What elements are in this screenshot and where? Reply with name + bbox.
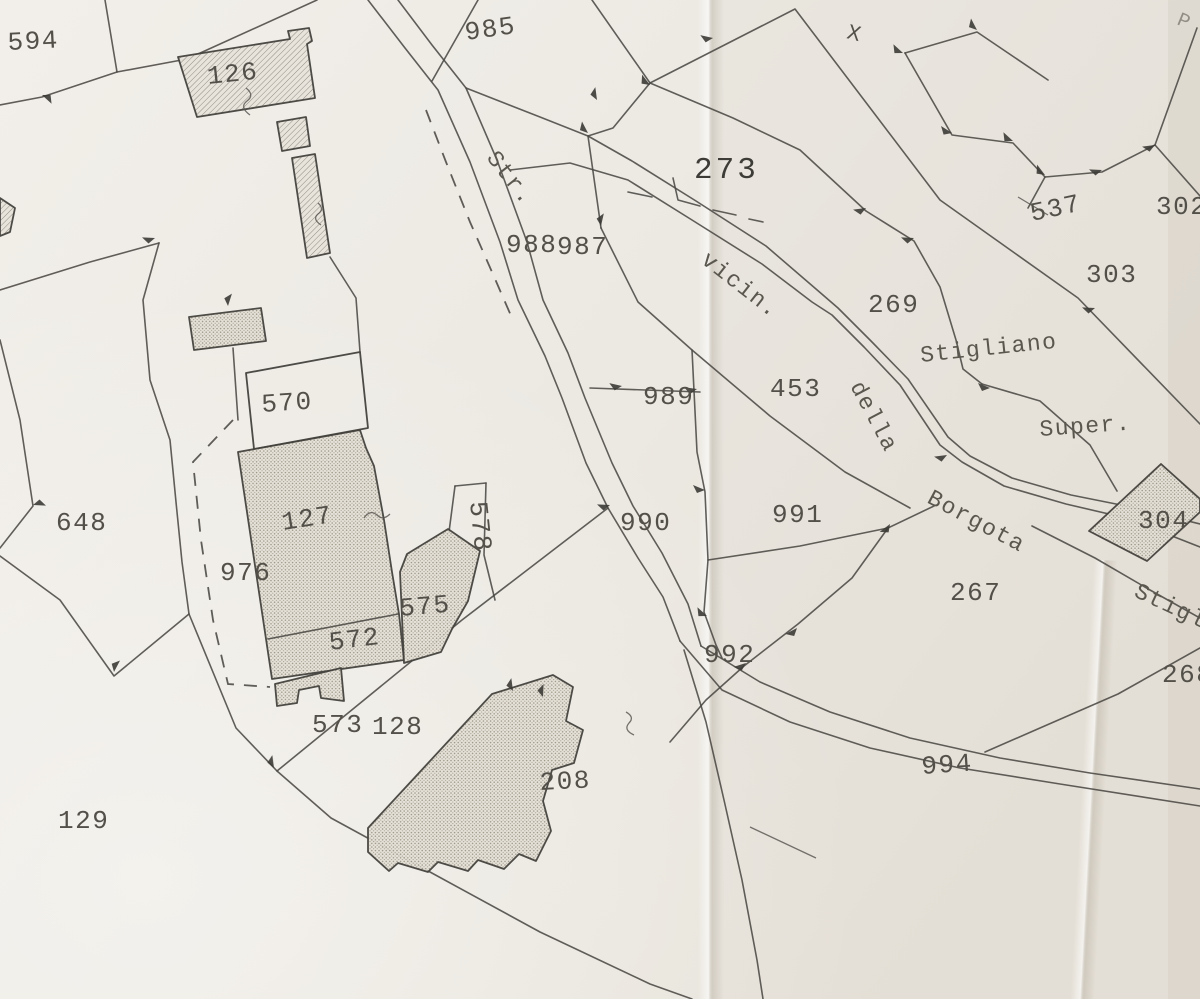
parcel-label-269: 269 (868, 290, 919, 320)
parcel-label-268: 268 (1162, 660, 1200, 690)
parcel-label-304: 304 (1138, 506, 1189, 536)
parcel-label-578: 578 (462, 500, 497, 554)
parcel-label-987: 987 (557, 232, 608, 262)
parcel-label-129: 129 (58, 806, 109, 836)
building-small-square (277, 117, 310, 151)
parcel-label-991: 991 (772, 500, 823, 530)
parcel-label-273: 273 (694, 153, 759, 188)
parcel-label-572: 572 (327, 622, 382, 658)
parcel-label-302: 302 (1156, 192, 1200, 222)
fold-crease-vertical (698, 0, 724, 999)
parcel-label-453: 453 (770, 374, 821, 404)
parcel-label-303: 303 (1086, 260, 1137, 290)
parcel-label-989: 989 (643, 382, 694, 412)
parcel-label-208: 208 (539, 765, 592, 798)
parcel-label-992: 992 (704, 640, 755, 670)
parcel-label-128: 128 (372, 712, 423, 742)
parcel-label-126: 126 (206, 57, 260, 92)
parcel-label-990: 990 (620, 508, 671, 538)
parcel-label-994: 994 (920, 748, 973, 782)
parcel-label-575: 575 (398, 590, 452, 624)
parcel-label-267: 267 (950, 578, 1001, 608)
parcel-label-573: 573 (312, 710, 363, 740)
parcel-label-648: 648 (56, 508, 107, 538)
parcel-label-594: 594 (7, 25, 60, 58)
cadastral-map-page: 594 126 985 273 537 302 303 988 987 989 … (0, 0, 1200, 999)
parcel-label-570: 570 (260, 386, 313, 420)
cadastral-map-svg: 594 126 985 273 537 302 303 988 987 989 … (0, 0, 1200, 999)
parcel-label-976: 976 (220, 558, 271, 588)
parcel-label-988: 988 (506, 230, 557, 260)
